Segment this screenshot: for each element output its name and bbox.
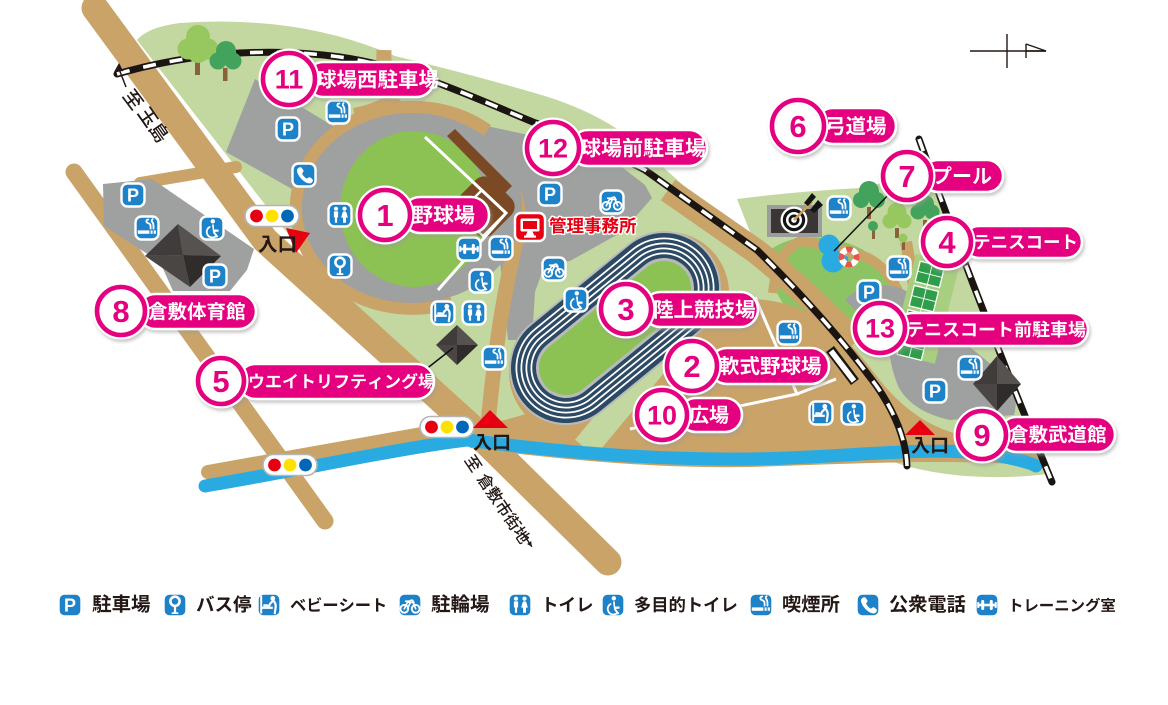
svg-text:2: 2 xyxy=(683,349,700,384)
svg-text:5: 5 xyxy=(212,364,229,399)
svg-text:8: 8 xyxy=(112,294,129,329)
svg-text:11: 11 xyxy=(275,65,304,95)
svg-text:1: 1 xyxy=(376,198,393,233)
svg-text:4: 4 xyxy=(938,225,956,260)
svg-text:6: 6 xyxy=(789,109,806,144)
svg-text:P: P xyxy=(282,120,294,140)
svg-text:7: 7 xyxy=(898,159,915,194)
svg-text:P: P xyxy=(929,382,941,402)
svg-text:9: 9 xyxy=(973,418,990,453)
svg-text:3: 3 xyxy=(617,292,634,327)
svg-text:12: 12 xyxy=(538,134,568,164)
svg-text:P: P xyxy=(544,185,556,205)
svg-text:P: P xyxy=(64,596,76,616)
svg-text:P: P xyxy=(209,267,221,287)
svg-text:10: 10 xyxy=(647,401,677,431)
svg-text:P: P xyxy=(127,186,139,206)
svg-text:13: 13 xyxy=(865,314,895,344)
